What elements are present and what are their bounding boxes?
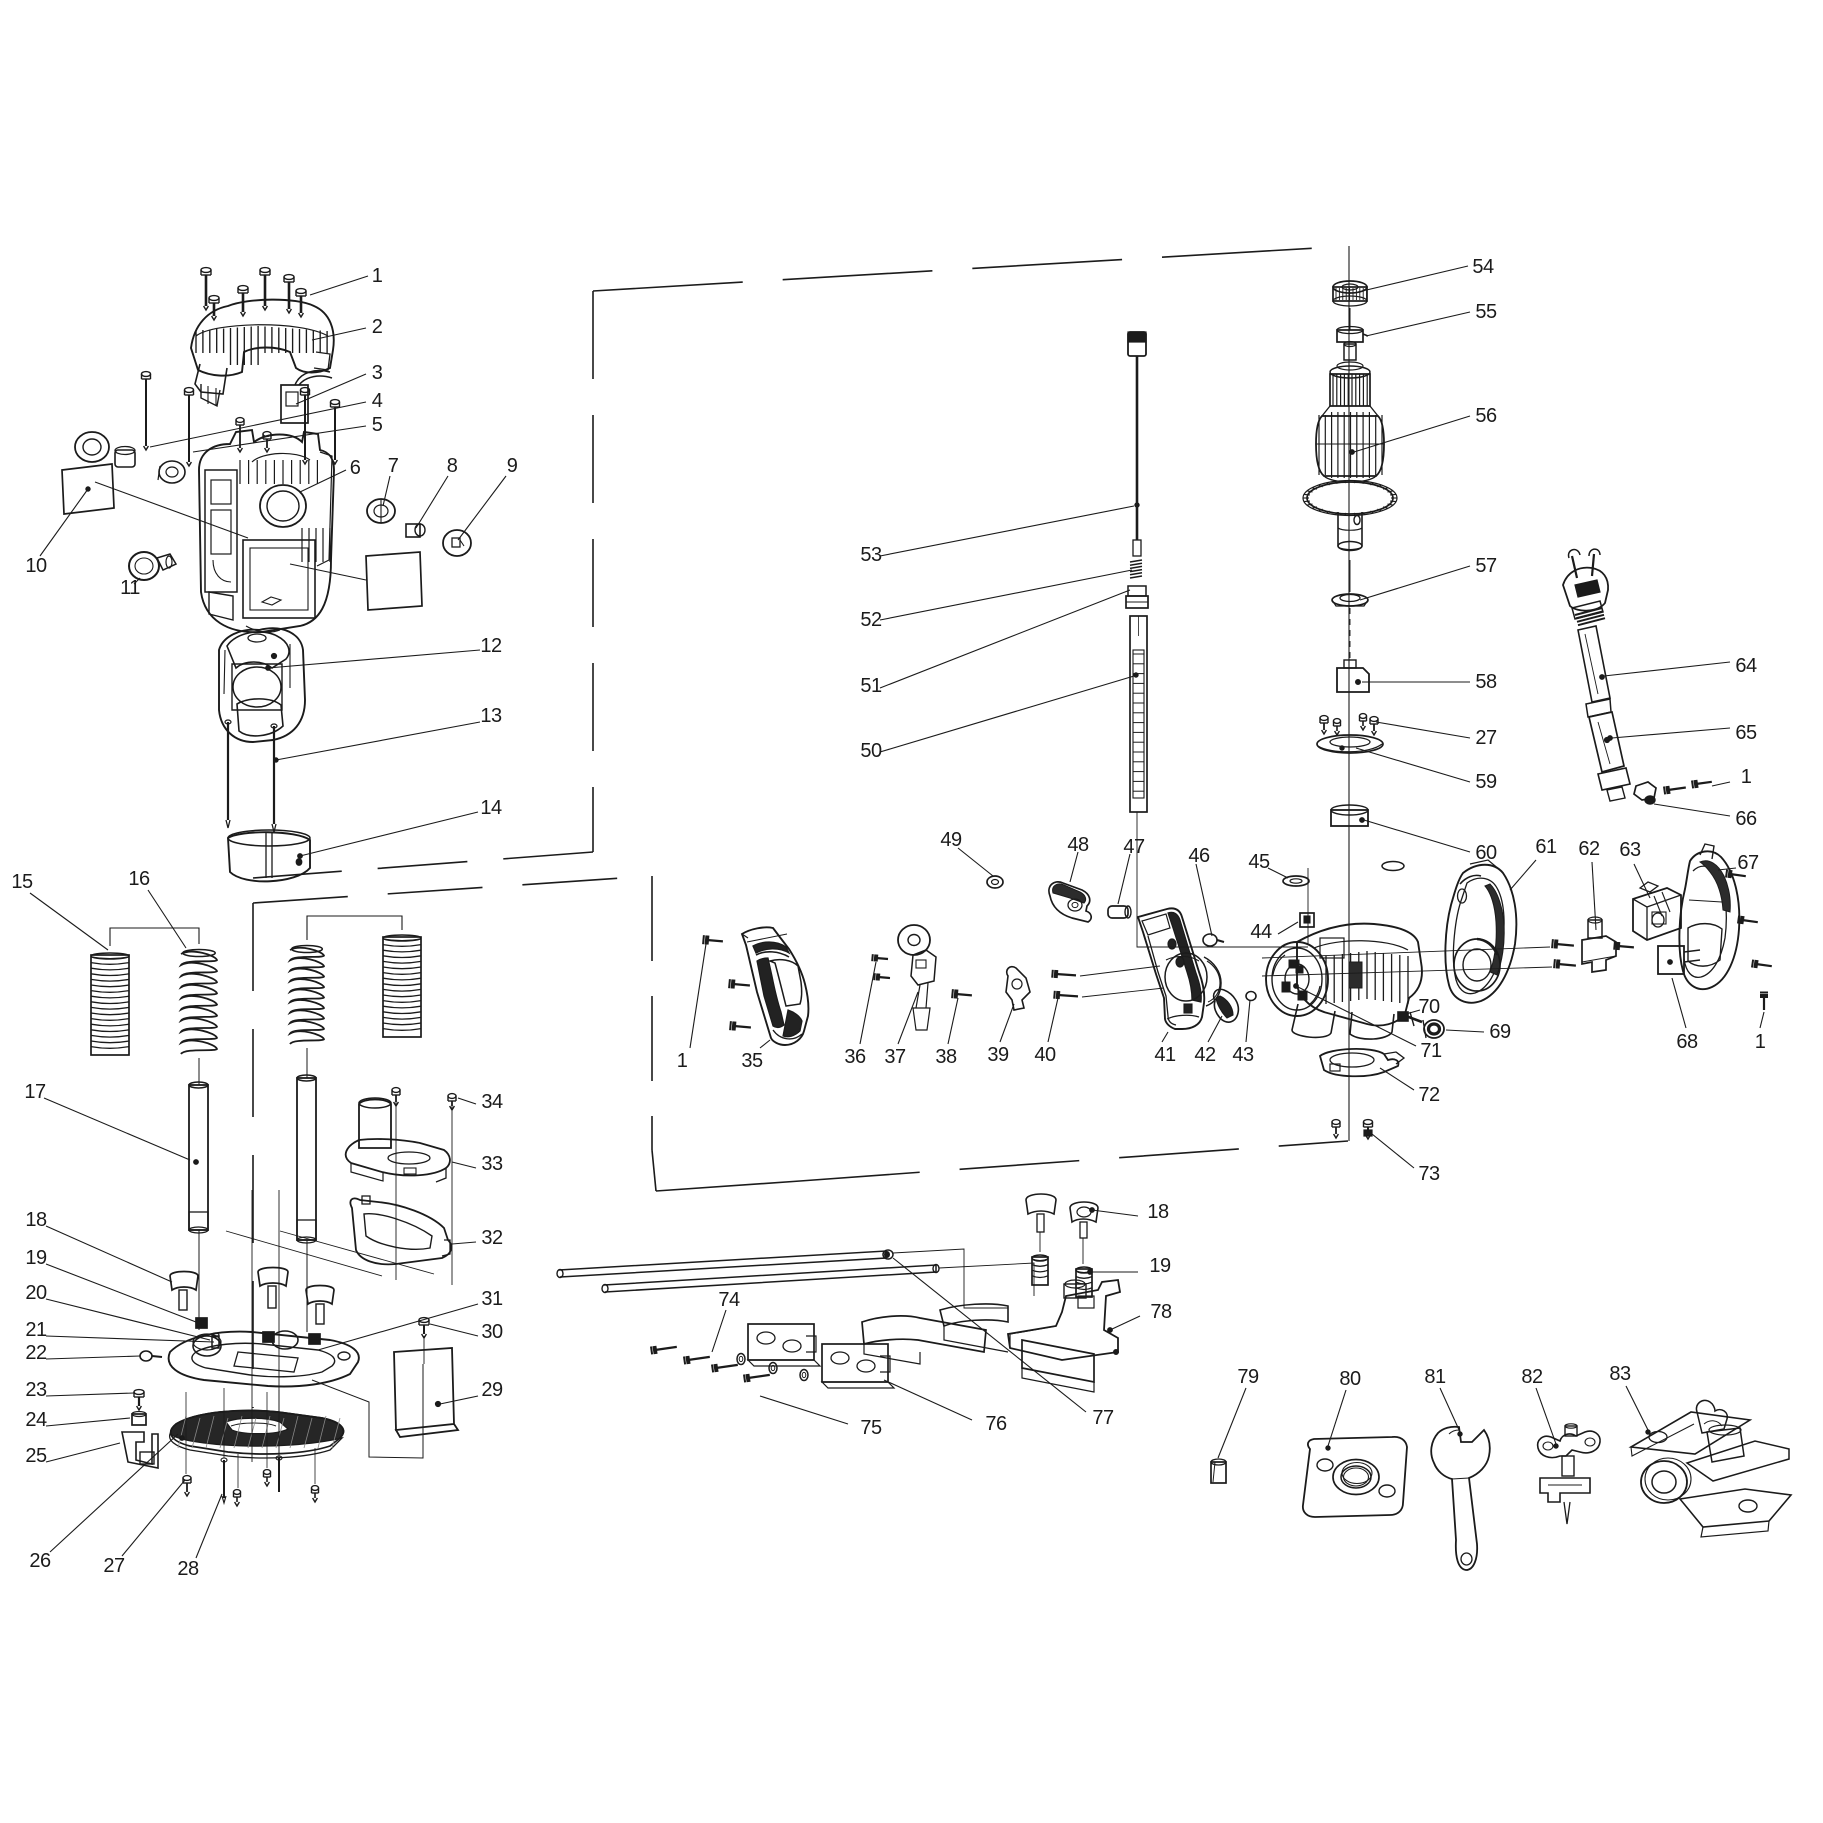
- svg-text:59: 59: [1475, 771, 1497, 793]
- svg-text:11: 11: [120, 577, 140, 599]
- svg-text:27: 27: [103, 1555, 125, 1577]
- svg-text:1: 1: [372, 265, 383, 287]
- svg-text:33: 33: [481, 1153, 503, 1175]
- svg-text:27: 27: [1475, 727, 1497, 749]
- svg-text:83: 83: [1609, 1363, 1631, 1385]
- svg-text:56: 56: [1475, 405, 1497, 427]
- svg-text:3: 3: [372, 362, 383, 384]
- svg-text:44: 44: [1250, 921, 1272, 943]
- svg-text:13: 13: [480, 705, 502, 727]
- svg-text:6: 6: [350, 457, 361, 479]
- svg-text:46: 46: [1188, 845, 1210, 867]
- svg-text:30: 30: [481, 1321, 503, 1343]
- svg-text:39: 39: [987, 1044, 1009, 1066]
- svg-text:61: 61: [1535, 836, 1557, 858]
- svg-text:14: 14: [480, 797, 502, 819]
- svg-text:35: 35: [741, 1050, 763, 1072]
- svg-text:57: 57: [1475, 555, 1497, 577]
- svg-text:68: 68: [1676, 1031, 1698, 1053]
- svg-text:72: 72: [1418, 1084, 1440, 1106]
- svg-text:1: 1: [1741, 766, 1752, 788]
- svg-text:4: 4: [372, 390, 383, 412]
- svg-text:41: 41: [1154, 1044, 1176, 1066]
- svg-text:65: 65: [1735, 722, 1757, 744]
- svg-text:42: 42: [1194, 1044, 1216, 1066]
- svg-text:73: 73: [1418, 1163, 1440, 1185]
- svg-text:48: 48: [1067, 834, 1089, 856]
- svg-text:40: 40: [1034, 1044, 1056, 1066]
- svg-text:45: 45: [1248, 851, 1270, 873]
- svg-text:54: 54: [1472, 256, 1494, 278]
- svg-text:19: 19: [1149, 1255, 1171, 1277]
- svg-text:29: 29: [481, 1379, 503, 1401]
- svg-text:77: 77: [1092, 1407, 1114, 1429]
- svg-text:71: 71: [1420, 1040, 1442, 1062]
- svg-text:76: 76: [985, 1413, 1007, 1435]
- svg-text:75: 75: [860, 1417, 882, 1439]
- svg-text:12: 12: [480, 635, 502, 657]
- svg-text:20: 20: [25, 1282, 47, 1304]
- svg-text:47: 47: [1123, 836, 1145, 858]
- svg-text:49: 49: [940, 829, 962, 851]
- svg-text:23: 23: [25, 1379, 47, 1401]
- svg-text:9: 9: [507, 455, 518, 477]
- svg-text:32: 32: [481, 1227, 503, 1249]
- svg-text:16: 16: [128, 868, 150, 890]
- svg-text:5: 5: [372, 414, 383, 436]
- svg-text:22: 22: [25, 1342, 47, 1364]
- svg-text:69: 69: [1489, 1021, 1511, 1043]
- svg-text:19: 19: [25, 1247, 47, 1269]
- svg-text:1: 1: [677, 1050, 688, 1072]
- svg-text:81: 81: [1424, 1366, 1446, 1388]
- svg-text:37: 37: [884, 1046, 906, 1068]
- svg-text:79: 79: [1237, 1366, 1259, 1388]
- svg-text:34: 34: [481, 1091, 503, 1113]
- svg-text:50: 50: [860, 740, 882, 762]
- svg-text:21: 21: [25, 1319, 47, 1341]
- svg-text:25: 25: [25, 1445, 47, 1467]
- svg-text:63: 63: [1619, 839, 1641, 861]
- svg-text:82: 82: [1521, 1366, 1543, 1388]
- svg-text:28: 28: [177, 1558, 199, 1580]
- svg-text:17: 17: [24, 1081, 46, 1103]
- svg-text:8: 8: [447, 455, 458, 477]
- svg-text:51: 51: [860, 675, 882, 697]
- svg-text:52: 52: [860, 609, 882, 631]
- svg-text:38: 38: [935, 1046, 957, 1068]
- svg-text:53: 53: [860, 544, 882, 566]
- svg-text:36: 36: [844, 1046, 866, 1068]
- svg-text:18: 18: [1147, 1201, 1169, 1223]
- svg-text:43: 43: [1232, 1044, 1254, 1066]
- svg-text:31: 31: [481, 1288, 503, 1310]
- svg-text:80: 80: [1339, 1368, 1361, 1390]
- svg-text:55: 55: [1475, 301, 1497, 323]
- svg-text:67: 67: [1737, 852, 1759, 874]
- svg-text:10: 10: [25, 555, 47, 577]
- svg-text:26: 26: [29, 1550, 51, 1572]
- svg-text:64: 64: [1735, 655, 1757, 677]
- svg-text:74: 74: [718, 1289, 740, 1311]
- svg-text:78: 78: [1150, 1301, 1172, 1323]
- svg-text:66: 66: [1735, 808, 1757, 830]
- svg-text:58: 58: [1475, 671, 1497, 693]
- svg-text:15: 15: [11, 871, 33, 893]
- svg-text:62: 62: [1578, 838, 1600, 860]
- svg-text:70: 70: [1418, 996, 1440, 1018]
- svg-text:18: 18: [25, 1209, 47, 1231]
- svg-text:2: 2: [372, 316, 383, 338]
- svg-text:1: 1: [1755, 1031, 1766, 1053]
- svg-text:7: 7: [388, 455, 399, 477]
- svg-text:24: 24: [25, 1409, 47, 1431]
